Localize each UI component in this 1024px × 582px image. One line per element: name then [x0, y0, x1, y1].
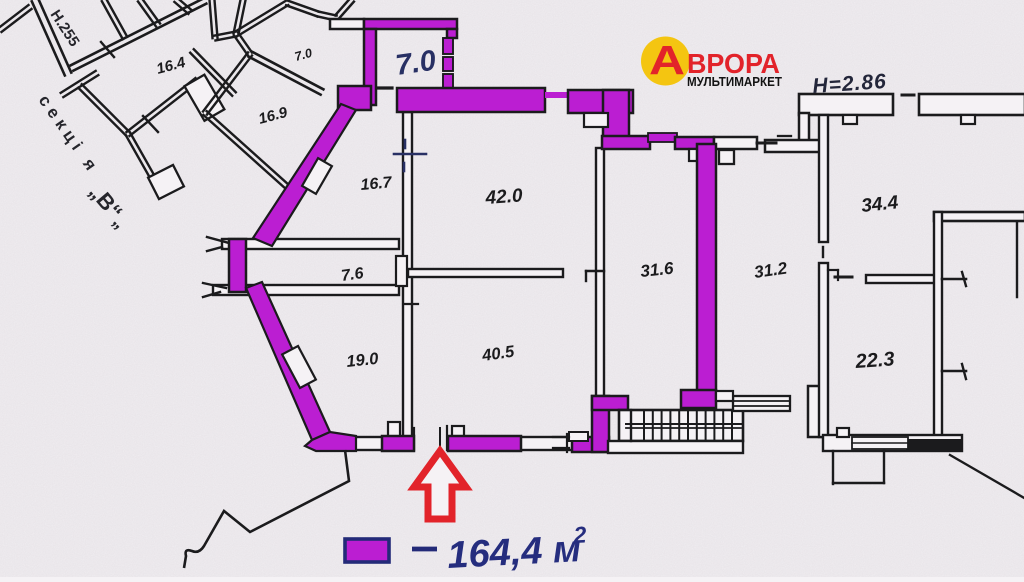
svg-text:22.3: 22.3: [854, 348, 895, 373]
svg-text:34.4: 34.4: [860, 192, 899, 217]
svg-text:7.0: 7.0: [394, 45, 438, 82]
svg-text:164,4 м: 164,4 м: [446, 528, 582, 577]
svg-text:19.0: 19.0: [346, 350, 381, 371]
svg-text:А: А: [649, 37, 685, 83]
svg-text:2: 2: [572, 521, 587, 548]
svg-text:16.7: 16.7: [360, 174, 394, 194]
svg-text:31.6: 31.6: [639, 259, 674, 281]
svg-text:7.6: 7.6: [340, 265, 364, 285]
svg-text:МУЛЬТИМАРКЕТ: МУЛЬТИМАРКЕТ: [687, 75, 782, 89]
svg-text:42.0: 42.0: [484, 185, 524, 209]
